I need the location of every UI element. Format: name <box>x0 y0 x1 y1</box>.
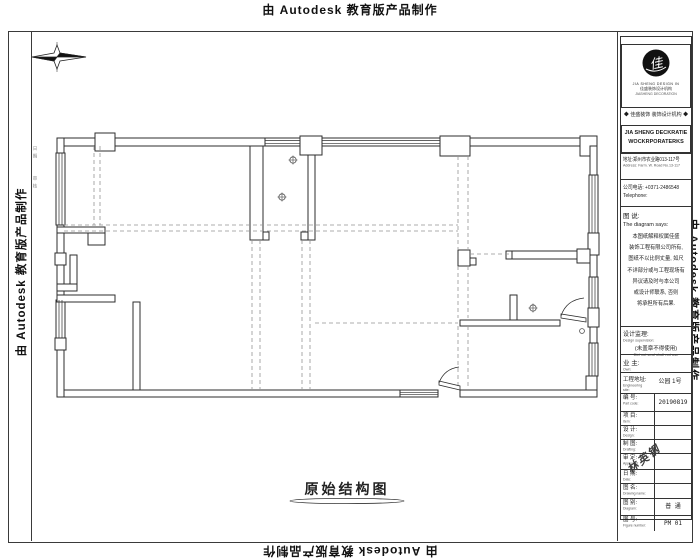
company-logo-icon: 佳 <box>639 48 673 80</box>
table-row: 图 号:Figure number: PM 01 <box>621 515 691 531</box>
title-block: 佳 JIA SHENG DESIGN IN 佳盛装饰设计机构 JIASHENG … <box>620 36 692 520</box>
address-en: Address: Farm. W. Road No.13-117 <box>623 163 682 168</box>
row-label-en: Figure number: <box>623 523 649 528</box>
sheet-left-strip-border <box>31 31 32 541</box>
logo-caption-sub: JIASHENG DECORATION <box>622 92 690 96</box>
watermark-bottom: 由 Autodesk 教育版产品制作 <box>0 543 700 560</box>
company-logo-box: 佳 JIA SHENG DESIGN IN 佳盛装饰设计机构 JIASHENG … <box>621 44 691 108</box>
row-value <box>655 412 691 425</box>
address-zh: 地址:郑州市农业路013-117号 <box>623 156 681 163</box>
company-name-line1: JIA SHENG DECKRATIE <box>622 129 690 138</box>
supervisor-en: Design supervision: <box>623 338 682 343</box>
north-compass-icon <box>30 40 88 74</box>
note-title-en: The diagram says: <box>623 222 689 228</box>
company-name-line2: WOCKRPORATERKS <box>622 138 690 147</box>
owner-label: 业 主: <box>623 360 640 367</box>
row-value <box>655 470 691 483</box>
beam-dashed-lines-group <box>64 146 512 390</box>
seal-note-zh: (未盖章不得使用) <box>623 344 689 352</box>
margin-note-date: 日 期 <box>32 146 38 159</box>
phone-zh: 公司电话: +0371-2486548 <box>623 183 681 191</box>
site-value: 公园 1号 <box>651 375 689 393</box>
company-tagline: ◆ 佳盛装饰 装饰设计机构 ◆ <box>621 108 691 122</box>
row-value: 20190819 <box>655 394 691 411</box>
plan-title-underline <box>289 497 405 505</box>
row-label-en: Diagram: <box>623 506 649 511</box>
row-value <box>655 484 691 498</box>
note-line: 图纸不以比例丈量, 如尺 <box>625 254 688 265</box>
site-en: Engineering site: <box>623 383 648 392</box>
floor-plan <box>40 98 615 418</box>
column-marker-symbols <box>278 156 585 334</box>
plan-title: 原始结构图 <box>282 479 412 499</box>
watermark-top: 由 Autodesk 教育版产品制作 <box>0 1 700 18</box>
margin-note-review: 审 核 <box>32 176 38 189</box>
row-label-en: Design: <box>623 433 649 438</box>
drawing-sheet: 由 Autodesk 教育版产品制作 由 Autodesk 教育版产品制作 由 … <box>0 0 700 560</box>
note-line: 或设计师联系, 否则 <box>625 288 688 299</box>
walls-group <box>55 133 599 397</box>
table-row: 编 号:Part code: 20190819 <box>621 394 691 411</box>
row-value: PM 01 <box>655 516 691 531</box>
note-line: 将承担所有后果. <box>625 299 688 310</box>
row-value <box>655 454 691 469</box>
row-label-en: Item: <box>623 419 649 424</box>
note-line: 本图纸解释权属佳盛 <box>625 232 688 243</box>
note-line: 装饰工程有限公司所有, <box>625 243 688 254</box>
row-label-en: Drawing name: <box>623 491 649 496</box>
phone-en: Telephone: <box>623 193 689 199</box>
row-value: 普 通 <box>655 499 691 515</box>
note-line: 异议请及时与本公司 <box>625 277 688 288</box>
company-name-box: JIA SHENG DECKRATIE WOCKRPORATERKS <box>621 125 691 153</box>
row-label-en: Date: <box>623 477 649 482</box>
diagram-note-section: 图 说: The diagram says: 本图纸解释权属佳盛 装饰工程有限公… <box>621 206 691 333</box>
owner-en: Own: <box>623 367 682 372</box>
table-row: 图 名:Drawing name: <box>621 483 691 498</box>
drawing-area-right-border <box>617 31 618 541</box>
note-line: 不详部分或与工程现场有 <box>625 266 688 277</box>
table-row: 图 别:Diagram: 普 通 <box>621 498 691 515</box>
row-label-en: Part code: <box>623 401 649 406</box>
note-title-zh: 图 说: <box>623 210 689 220</box>
